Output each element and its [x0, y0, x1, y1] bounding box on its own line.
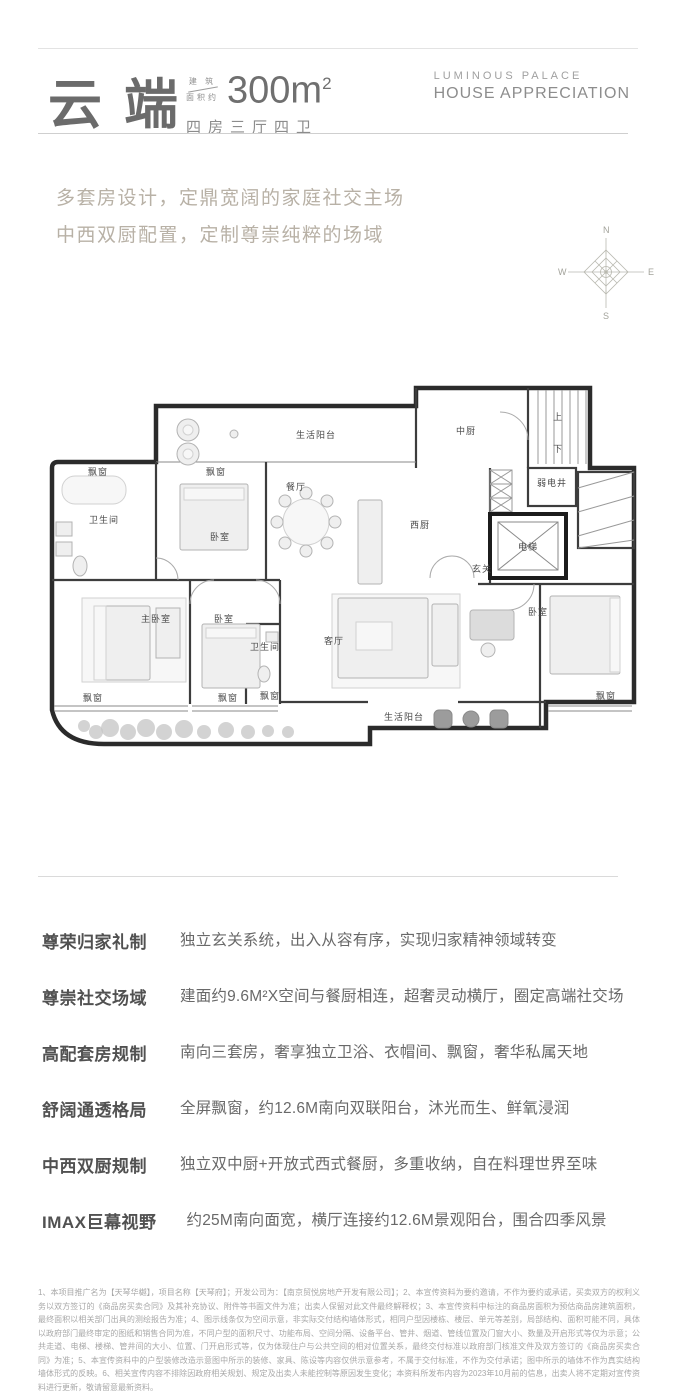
- feature-row: IMAX巨幕视野 约25M南向面宽，横厅连接约12.6M景观阳台，围合四季风景: [42, 1208, 648, 1234]
- room-label: 生活阳台: [296, 429, 336, 440]
- feature-row: 中西双厨规制 独立双中厨+开放式西式餐厨，多重收纳，自在料理世界至味: [42, 1152, 648, 1178]
- disclaimer-text: 1、本项目推广名为【天琴华樾】，项目名称【天琴府】；开发公司为：【南京贸悦房地产…: [38, 1286, 640, 1394]
- feature-row: 尊崇社交场域 建面约9.6M²X空间与餐厨相连，超奢灵动横厅，圈定高端社交场: [42, 984, 648, 1010]
- feature-label: 尊荣归家礼制: [42, 928, 150, 953]
- room-label: 卧室: [210, 531, 230, 542]
- floor-plan: 生活阳台中厨上下飘窗卫生间飘窗卧室餐厅西厨弱电井电梯玄关主卧室卧室卫生间客厅卧室…: [38, 372, 638, 770]
- divider: [38, 48, 638, 49]
- feature-list: 尊荣归家礼制 独立玄关系统，出入从容有序，实现归家精神领域转变 尊崇社交场域 建…: [42, 928, 648, 1264]
- room-label: 玄关: [472, 563, 492, 574]
- area-sup: 2: [322, 74, 331, 93]
- feature-label: 尊崇社交场域: [42, 984, 150, 1009]
- feature-label: IMAX巨幕视野: [42, 1208, 157, 1233]
- compass-s: S: [603, 311, 609, 321]
- area-prefix-bottom: 面积约: [186, 92, 219, 103]
- feature-row: 高配套房规制 南向三套房，奢享独立卫浴、衣帽间、飘窗，奢华私属天地: [42, 1040, 648, 1066]
- area-block: 建 筑 面积约 300m2 四房三厅四卫: [186, 66, 332, 137]
- feature-label: 舒阔通透格局: [42, 1096, 150, 1121]
- room-label: 上: [553, 412, 563, 422]
- tagline: 多套房设计，定鼎宽阔的家庭社交主场 中西双厨配置，定制尊崇纯粹的场域: [56, 180, 405, 254]
- feature-description: 约25M南向面宽，横厅连接约12.6M景观阳台，围合四季风景: [187, 1208, 607, 1230]
- area-value: 300m2: [227, 66, 332, 109]
- room-label: 飘窗: [88, 466, 108, 477]
- brand-line1: LUMINOUS PALACE: [434, 70, 630, 82]
- room-label: 飘窗: [206, 466, 226, 477]
- room-label: 卧室: [214, 613, 234, 624]
- room-label: 飘窗: [260, 690, 280, 701]
- divider: [38, 876, 618, 877]
- room-label: 餐厅: [286, 481, 306, 492]
- room-label: 主卧室: [141, 613, 171, 624]
- room-label: 电梯: [518, 541, 538, 552]
- brand-line2: HOUSE APPRECIATION: [434, 85, 630, 103]
- room-label: 中厨: [456, 425, 476, 436]
- poster-page: 云端 建 筑 面积约 300m2 四房三厅四卫 LUMINOUS PALACE …: [0, 0, 676, 1400]
- tagline-line2: 中西双厨配置，定制尊崇纯粹的场域: [56, 217, 405, 254]
- area-prefix: 建 筑 面积约: [186, 76, 219, 103]
- room-label: 客厅: [324, 635, 344, 646]
- room-label: 卫生间: [89, 514, 119, 525]
- room-label: 飘窗: [218, 692, 238, 703]
- feature-description: 独立玄关系统，出入从容有序，实现归家精神领域转变: [180, 928, 557, 950]
- room-label: 生活阳台: [384, 711, 424, 722]
- feature-description: 独立双中厨+开放式西式餐厨，多重收纳，自在料理世界至味: [180, 1152, 597, 1174]
- room-label: 卧室: [528, 606, 548, 617]
- room-label: 飘窗: [83, 692, 103, 703]
- page-title: 云端: [48, 60, 200, 139]
- feature-label: 中西双厨规制: [42, 1152, 150, 1177]
- compass-n: N: [603, 225, 610, 235]
- feature-label: 高配套房规制: [42, 1040, 150, 1065]
- compass-icon: N S W E: [556, 222, 656, 322]
- feature-row: 尊荣归家礼制 独立玄关系统，出入从容有序，实现归家精神领域转变: [42, 928, 648, 954]
- compass-w: W: [558, 267, 567, 277]
- tagline-line1: 多套房设计，定鼎宽阔的家庭社交主场: [56, 180, 405, 217]
- room-label: 下: [553, 444, 563, 454]
- brand-block: LUMINOUS PALACE HOUSE APPRECIATION: [434, 70, 630, 103]
- room-label: 西厨: [410, 520, 430, 530]
- compass-e: E: [648, 267, 654, 277]
- feature-description: 建面约9.6M²X空间与餐厨相连，超奢灵动横厅，圈定高端社交场: [180, 984, 624, 1006]
- area-prefix-top: 建 筑: [189, 76, 216, 87]
- divider: [38, 133, 628, 134]
- header: 云端 建 筑 面积约 300m2 四房三厅四卫 LUMINOUS PALACE …: [46, 58, 636, 138]
- feature-row: 舒阔通透格局 全屏飘窗，约12.6M南向双联阳台，沐光而生、鲜氧浸润: [42, 1096, 648, 1122]
- room-label: 飘窗: [596, 690, 616, 701]
- room-label: 弱电井: [537, 477, 567, 488]
- feature-description: 南向三套房，奢享独立卫浴、衣帽间、飘窗，奢华私属天地: [180, 1040, 588, 1062]
- feature-description: 全屏飘窗，约12.6M南向双联阳台，沐光而生、鲜氧浸润: [180, 1096, 569, 1118]
- room-label: 卫生间: [250, 641, 280, 652]
